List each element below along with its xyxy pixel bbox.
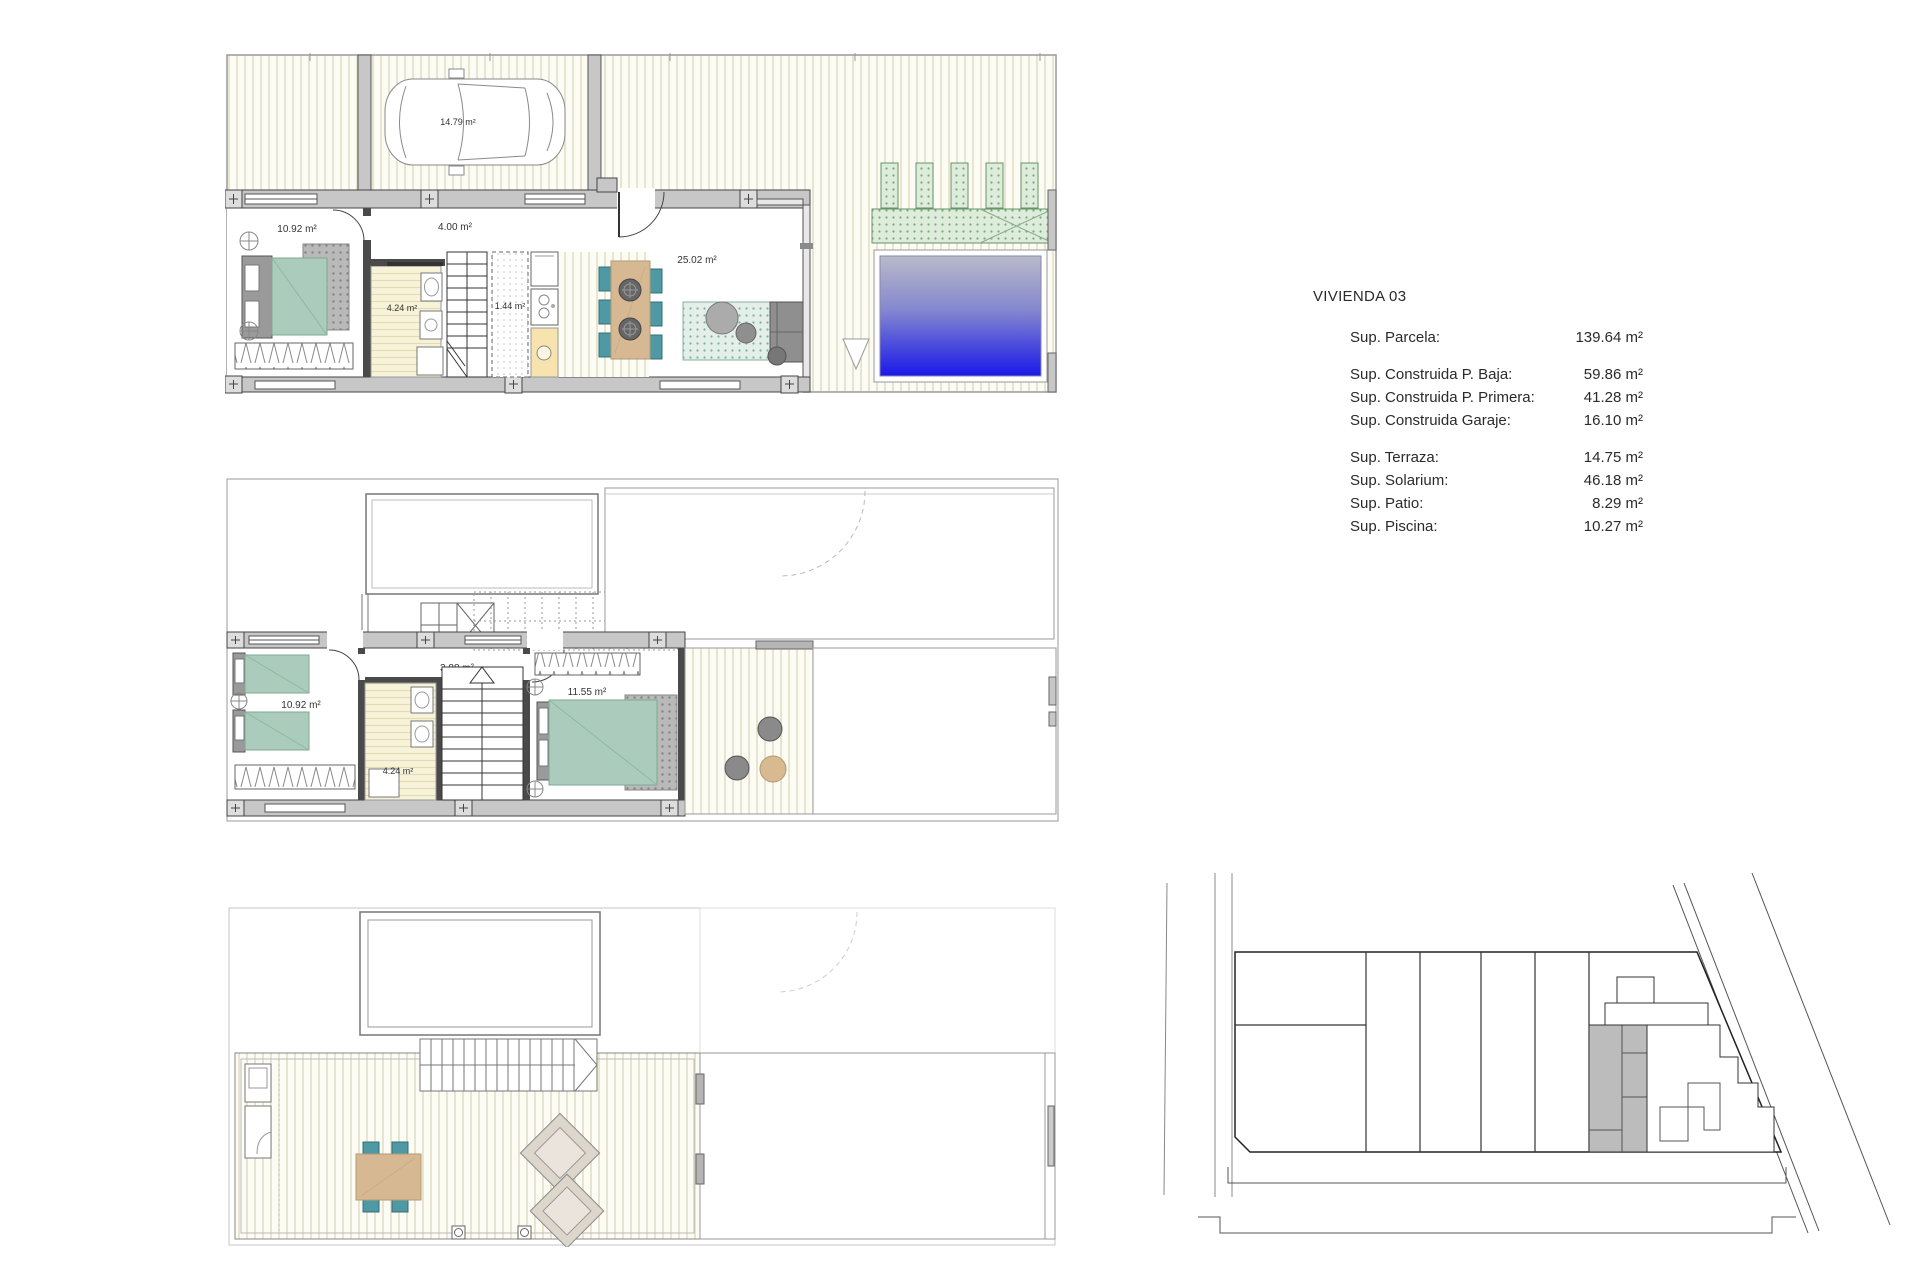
table-row: Sup. Solarium: 46.18 m² xyxy=(1313,469,1643,492)
table-row: Sup. Parcela: 139.64 m² xyxy=(1313,326,1643,349)
floor-plan-ground: 14.79 m² xyxy=(225,53,1058,399)
wardrobe xyxy=(535,653,640,675)
side-table xyxy=(736,323,756,343)
swimming-pool xyxy=(874,250,1047,382)
hall-area-label: 4.00 m² xyxy=(438,222,473,233)
bedroom-left-area-label: 10.92 m² xyxy=(281,700,321,711)
surface-value: 16.10 m² xyxy=(1584,409,1643,432)
table-row: Sup. Terraza: 14.75 m² xyxy=(1313,446,1643,469)
armchair xyxy=(768,347,786,365)
site-plan xyxy=(1160,845,1920,1285)
terrace-chair xyxy=(725,756,749,780)
surface-value: 139.64 m² xyxy=(1575,326,1643,349)
front-wall xyxy=(227,630,685,650)
bedroom-area-label: 10.92 m² xyxy=(277,224,317,235)
terrace-chair xyxy=(758,717,782,741)
table-row: Sup. Construida P. Primera: 41.28 m² xyxy=(1313,386,1643,409)
highlighted-parcel xyxy=(1589,1025,1647,1152)
surface-value: 14.75 m² xyxy=(1584,446,1643,469)
terrace-table xyxy=(760,756,786,782)
street-lines-left xyxy=(1164,873,1232,1197)
sidewalk-lines xyxy=(1198,1167,1796,1233)
surface-table: Sup. Parcela: 139.64 m² Sup. Construida … xyxy=(1313,326,1643,538)
architectural-sheet: { "info_panel": { "title": "VIVIENDA 03"… xyxy=(0,0,1920,1280)
kitchenette xyxy=(245,1064,271,1158)
rear-wall xyxy=(227,800,685,816)
wardrobe xyxy=(235,765,355,789)
pantry: 1.44 m² xyxy=(492,252,528,377)
surface-label: Sup. Piscina: xyxy=(1350,515,1438,538)
surface-label: Sup. Solarium: xyxy=(1350,469,1448,492)
road-line xyxy=(1752,873,1890,1225)
stairs xyxy=(447,252,487,377)
surface-label: Sup. Terraza: xyxy=(1350,446,1439,469)
upper-right-region xyxy=(605,488,1054,639)
bathroom: 4.24 m² xyxy=(371,259,445,377)
surface-label: Sup. Construida P. Primera: xyxy=(1350,386,1535,409)
neighbor-roof-region xyxy=(696,1053,1055,1239)
living-area-label: 25.02 m² xyxy=(677,255,717,266)
bedroom-right-area-label: 11.55 m² xyxy=(568,687,607,698)
surface-value: 46.18 m² xyxy=(1584,469,1643,492)
surface-label: Sup. Construida P. Baja: xyxy=(1350,363,1512,386)
double-bed xyxy=(242,256,327,338)
coffee-table xyxy=(706,302,738,334)
bathroom-area-label: 4.24 m² xyxy=(383,766,414,776)
fridge xyxy=(531,252,558,286)
stairs xyxy=(442,667,523,800)
stairs xyxy=(420,1039,597,1091)
surface-value: 41.28 m² xyxy=(1584,386,1643,409)
bathroom: 4.24 m² xyxy=(365,683,436,800)
table-row: Sup. Construida Garaje: 16.10 m² xyxy=(1313,409,1643,432)
bathroom-area-label: 4.24 m² xyxy=(387,303,418,313)
single-bed xyxy=(233,653,309,695)
dining-table xyxy=(599,261,662,359)
pantry-area-label: 1.44 m² xyxy=(495,301,526,311)
wardrobe xyxy=(235,343,353,369)
surface-value: 59.86 m² xyxy=(1584,363,1643,386)
table-row: Sup. Patio: 8.29 m² xyxy=(1313,492,1643,515)
surface-value: 8.29 m² xyxy=(1592,492,1643,515)
double-bed xyxy=(537,700,657,785)
neighbor-patio xyxy=(813,648,1056,814)
ceiling-light-symbol xyxy=(231,693,247,709)
surface-label: Sup. Parcela: xyxy=(1350,326,1440,349)
single-bed xyxy=(233,710,309,752)
terrace xyxy=(685,641,813,814)
garage-area-label: 14.79 m² xyxy=(440,117,476,127)
surface-value: 10.27 m² xyxy=(1584,515,1643,538)
table-row: Sup. Construida P. Baja: 59.86 m² xyxy=(1313,363,1643,386)
floor-plan-first: 3.88 m² 10.92 m² 4.24 m² xyxy=(225,477,1060,828)
stair-enclosure xyxy=(360,912,600,1035)
floor-plan-solarium xyxy=(227,906,1057,1252)
table-row: Sup. Piscina: 10.27 m² xyxy=(1313,515,1643,538)
rear-wall xyxy=(225,376,810,393)
surface-label: Sup. Patio: xyxy=(1350,492,1423,515)
surface-label: Sup. Construida Garaje: xyxy=(1350,409,1511,432)
dwelling-title: VIVIENDA 03 xyxy=(1313,288,1643,305)
info-panel: VIVIENDA 03 Sup. Parcela: 139.64 m² Sup.… xyxy=(1313,288,1643,538)
